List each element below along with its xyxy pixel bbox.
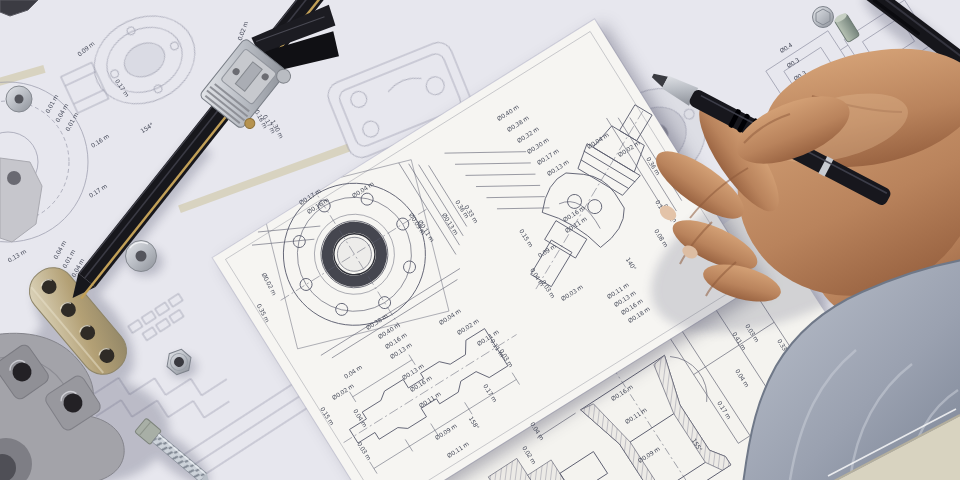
hand-layer xyxy=(0,0,960,480)
fingernail-middle xyxy=(657,203,679,224)
workspace-photo: 0.09 m0.16 m0.17 m0.17 m0.01 m0.04 m0.01… xyxy=(0,0,960,480)
